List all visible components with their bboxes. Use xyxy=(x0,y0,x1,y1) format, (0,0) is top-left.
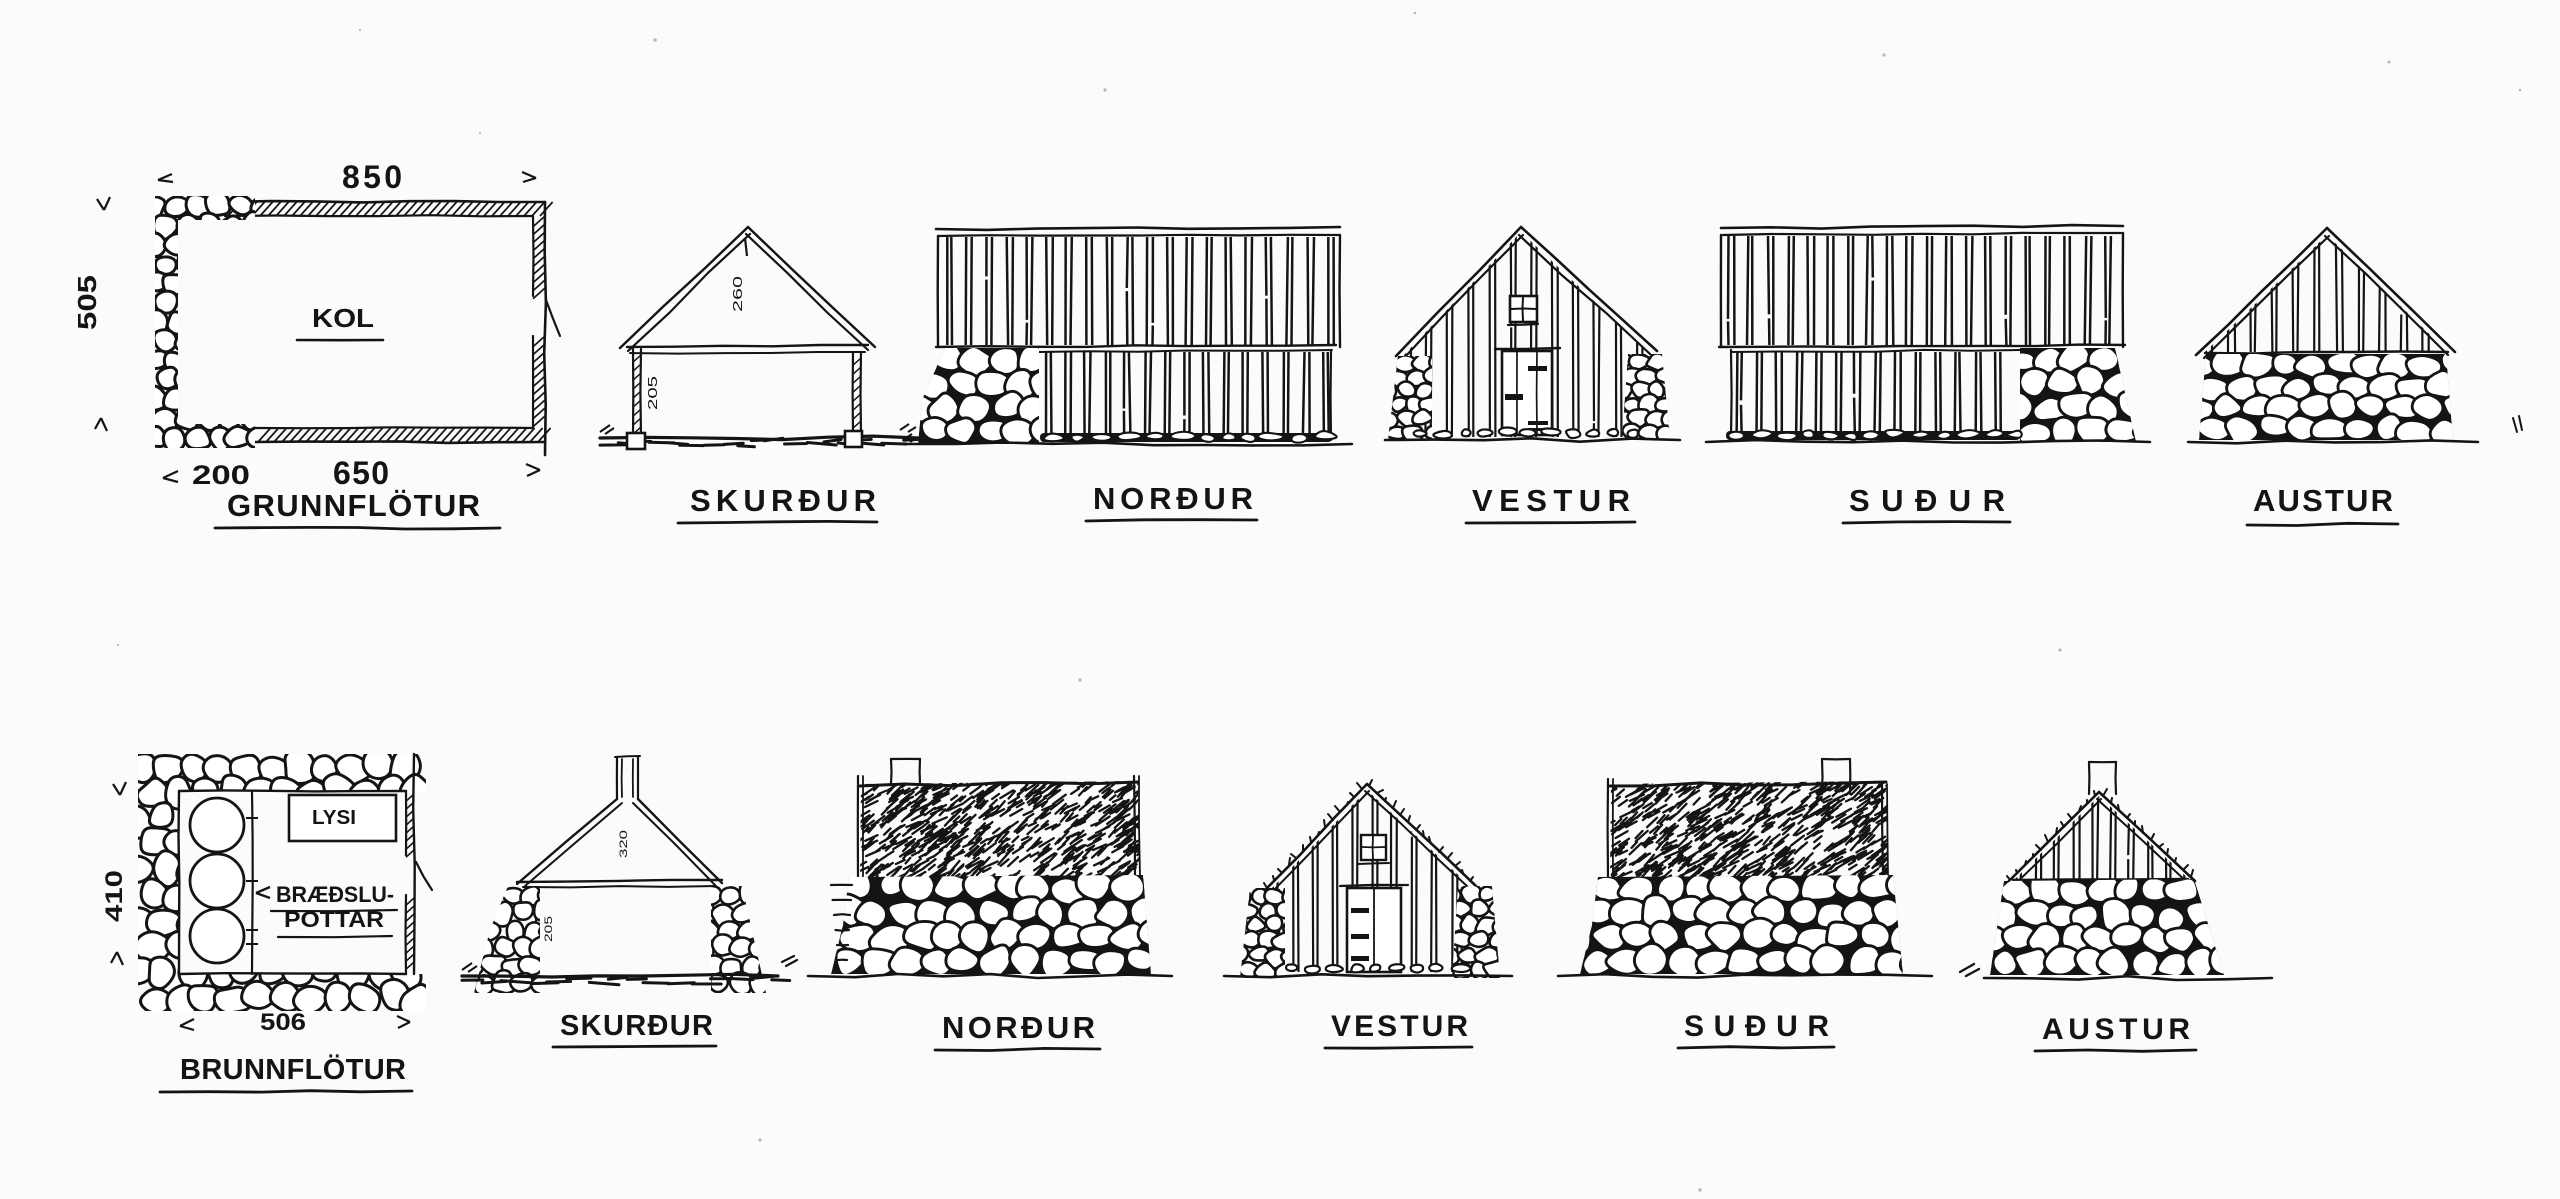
svg-text:LYSI: LYSI xyxy=(312,807,356,829)
svg-text:410: 410 xyxy=(101,870,128,922)
svg-text:BRÆÐSLU-: BRÆÐSLU- xyxy=(276,882,394,907)
svg-text:260: 260 xyxy=(730,276,745,312)
svg-text:SKURÐUR: SKURÐUR xyxy=(560,1010,713,1042)
svg-text:205: 205 xyxy=(543,916,555,942)
svg-text:BRUNNFLÖTUR: BRUNNFLÖTUR xyxy=(180,1053,406,1086)
svg-text:GRUNNFLÖTUR: GRUNNFLÖTUR xyxy=(227,488,480,523)
svg-text:320: 320 xyxy=(618,830,630,858)
svg-text:200: 200 xyxy=(192,460,250,490)
svg-text:850: 850 xyxy=(342,159,402,195)
svg-text:505: 505 xyxy=(72,275,102,330)
svg-text:POTTAR: POTTAR xyxy=(284,907,384,932)
svg-text:650: 650 xyxy=(333,455,389,491)
svg-text:205: 205 xyxy=(645,376,660,410)
svg-text:SKURÐUR: SKURÐUR xyxy=(690,483,876,518)
svg-text:506: 506 xyxy=(260,1009,306,1036)
svg-text:KOL: KOL xyxy=(312,303,374,333)
